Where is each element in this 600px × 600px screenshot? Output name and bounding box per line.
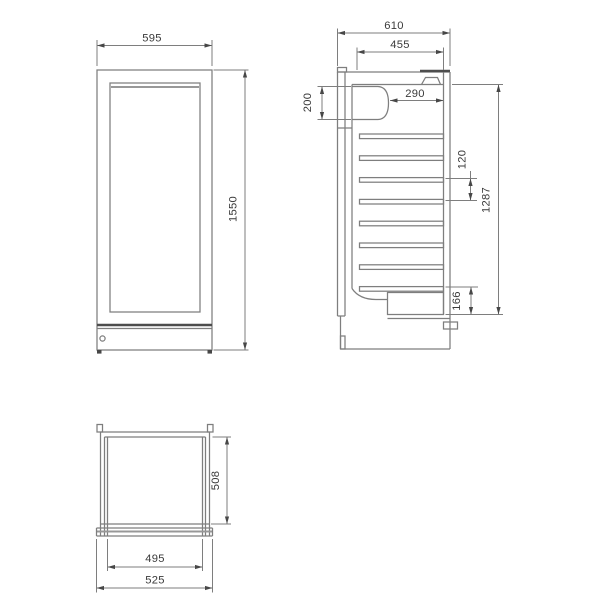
arrowhead [205,43,213,47]
dimension-label: 508 [210,471,222,491]
shelf [360,265,444,270]
side-shelves [360,134,444,291]
arrowhead [468,193,472,201]
arrowhead [320,112,324,120]
dimension-label: 495 [145,553,165,565]
arrowhead [97,43,105,47]
dim-side-interior-height: 1287 [446,85,504,315]
arrowhead [469,287,473,295]
drawing-canvas: 595 1550 [0,0,600,600]
dimension-label: 290 [405,88,425,100]
arrowhead [320,87,324,95]
dimension-label: 610 [384,20,404,32]
side-front-foot [341,336,346,349]
side-top-box [352,87,389,120]
dimension-label: 1550 [228,196,240,222]
arrowhead [436,50,444,54]
dimension-label: 200 [302,93,314,113]
front-door-frame [110,83,200,312]
front-cabinet-outline [97,70,212,350]
dim-side-upper-clear-depth: 290 [390,88,444,103]
dim-front-width: 595 [97,33,212,67]
shelf [360,178,444,183]
arrowhead [195,565,203,569]
dimension-label: 120 [457,150,469,170]
arrowhead [469,307,473,315]
technical-drawing: 595 1550 [0,0,600,600]
arrowhead [390,98,398,102]
arrowhead [496,307,500,315]
side-hinge-detail [422,78,441,85]
lock-icon [100,336,105,341]
dimension-label: 1287 [481,187,493,213]
plan-rear-spacer-right [208,425,214,433]
dimension-label: 166 [451,291,463,311]
arrowhead [97,586,105,590]
arrowhead [443,31,451,35]
arrowhead [243,343,247,351]
dim-front-height: 1550 [214,70,249,350]
front-foot-left [97,350,102,354]
side-floor-curve [352,289,388,300]
arrowhead [468,179,472,187]
arrowhead [338,31,346,35]
arrowhead [205,586,213,590]
dim-side-interior-depth: 455 [357,39,444,70]
shelf [360,243,444,248]
front-view: 595 1550 [97,33,249,354]
side-compressor-step [388,293,444,315]
dimension-label: 525 [145,575,165,587]
arrowhead [357,50,365,54]
side-view: 610 455 200 290 [302,20,503,349]
plan-view: 508 495 525 [97,425,232,593]
dim-side-top-section-height: 200 [302,87,351,120]
shelf [360,156,444,161]
arrowhead [243,70,247,78]
front-foot-right [208,350,213,354]
dim-plan-body-depth: 508 [210,437,231,524]
interior-floor [360,287,444,292]
dim-plan-inner-width: 495 [108,539,203,571]
arrowhead [108,565,116,569]
arrowhead [225,437,229,445]
arrowhead [496,85,500,93]
shelf [360,199,444,204]
dimension-label: 595 [142,33,162,45]
shelf [360,134,444,139]
dimension-label: 455 [390,39,410,51]
shelf [360,221,444,226]
side-top-front-tab [338,68,347,73]
arrowhead [225,517,229,525]
plan-rear-spacer-left [97,425,103,433]
arrowhead [436,98,444,102]
